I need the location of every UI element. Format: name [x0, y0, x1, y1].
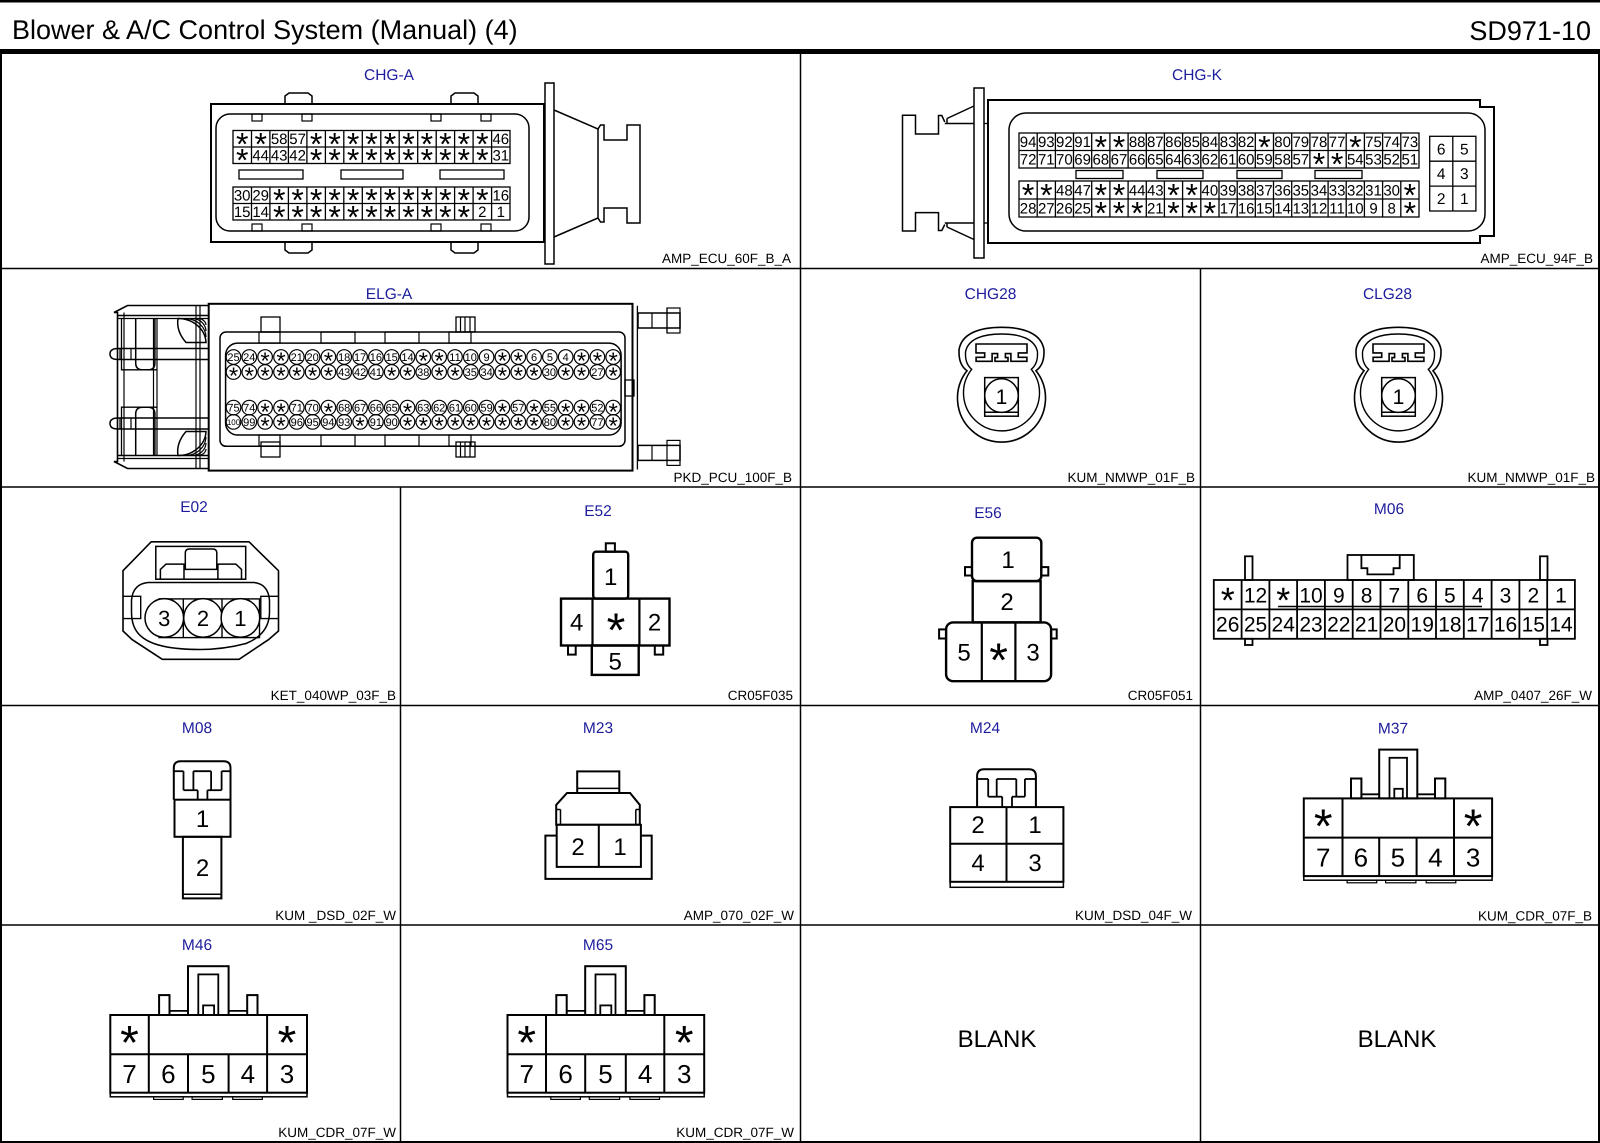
svg-text:57: 57: [289, 131, 306, 148]
svg-text:M06: M06: [1374, 501, 1404, 518]
svg-text:7: 7: [1316, 842, 1330, 872]
svg-text:*: *: [1113, 195, 1125, 231]
svg-text:41: 41: [370, 367, 382, 379]
svg-text:30: 30: [234, 188, 251, 205]
svg-text:4: 4: [563, 352, 569, 364]
svg-text:59: 59: [1256, 152, 1273, 169]
svg-text:E56: E56: [974, 505, 1002, 522]
svg-text:16: 16: [1238, 200, 1255, 217]
svg-text:5: 5: [201, 1059, 215, 1089]
svg-text:*: *: [561, 363, 570, 390]
svg-text:2: 2: [971, 812, 984, 839]
svg-text:*: *: [458, 142, 470, 178]
svg-text:33: 33: [1329, 182, 1346, 199]
svg-text:1: 1: [196, 806, 209, 833]
svg-text:88: 88: [1129, 134, 1146, 151]
svg-text:*: *: [291, 199, 303, 235]
svg-text:*: *: [328, 142, 340, 178]
svg-text:11: 11: [1329, 200, 1345, 217]
svg-text:*: *: [403, 413, 412, 440]
svg-text:2: 2: [1437, 191, 1446, 208]
svg-text:10: 10: [465, 352, 477, 364]
svg-text:*: *: [514, 363, 523, 390]
svg-text:*: *: [529, 363, 538, 390]
svg-text:4: 4: [1472, 584, 1484, 607]
svg-text:82: 82: [1238, 134, 1255, 151]
svg-text:24: 24: [243, 352, 255, 364]
svg-text:*: *: [561, 413, 570, 440]
svg-text:75: 75: [227, 403, 239, 415]
svg-text:23: 23: [1299, 614, 1322, 637]
svg-text:42: 42: [354, 367, 366, 379]
svg-text:99: 99: [243, 417, 255, 429]
svg-text:*: *: [1404, 195, 1416, 231]
svg-text:3: 3: [1466, 842, 1480, 872]
svg-text:28: 28: [1020, 200, 1037, 217]
svg-text:1: 1: [1393, 386, 1405, 409]
svg-text:20: 20: [306, 352, 318, 364]
svg-text:96: 96: [291, 417, 303, 429]
svg-text:7: 7: [122, 1059, 136, 1089]
svg-text:57: 57: [1292, 152, 1309, 169]
svg-text:60: 60: [1238, 152, 1255, 169]
svg-text:38: 38: [1238, 182, 1255, 199]
svg-text:6: 6: [1437, 141, 1446, 158]
svg-text:5: 5: [1460, 141, 1469, 158]
svg-text:BLANK: BLANK: [1358, 1026, 1437, 1053]
svg-text:46: 46: [492, 131, 509, 148]
svg-text:M46: M46: [182, 937, 212, 954]
svg-text:65: 65: [386, 403, 398, 415]
svg-text:15: 15: [1256, 200, 1273, 217]
svg-text:*: *: [402, 142, 414, 178]
svg-text:PKD_PCU_100F_B: PKD_PCU_100F_B: [673, 470, 792, 485]
svg-text:10: 10: [1299, 584, 1322, 607]
svg-text:*: *: [308, 363, 317, 390]
svg-text:13: 13: [1292, 200, 1309, 217]
svg-text:35: 35: [465, 367, 477, 379]
svg-text:87: 87: [1147, 134, 1164, 151]
svg-text:32: 32: [1347, 182, 1364, 199]
svg-text:*: *: [1095, 195, 1107, 231]
svg-text:93: 93: [338, 417, 350, 429]
svg-text:M08: M08: [182, 720, 212, 737]
svg-text:*: *: [476, 142, 488, 178]
svg-text:34: 34: [1311, 182, 1328, 199]
svg-text:4: 4: [971, 850, 984, 877]
svg-text:6: 6: [531, 352, 537, 364]
svg-text:5: 5: [1391, 842, 1405, 872]
svg-text:16: 16: [1494, 614, 1517, 637]
svg-text:*: *: [450, 413, 459, 440]
svg-text:2: 2: [196, 855, 209, 882]
svg-text:*: *: [1167, 195, 1179, 231]
svg-text:20: 20: [1383, 614, 1406, 637]
svg-text:1: 1: [613, 834, 626, 861]
svg-text:38: 38: [417, 367, 429, 379]
svg-text:3: 3: [280, 1059, 294, 1089]
svg-text:*: *: [439, 199, 451, 235]
svg-text:*: *: [439, 142, 451, 178]
svg-text:*: *: [310, 142, 322, 178]
svg-text:*: *: [328, 199, 340, 235]
svg-text:37: 37: [1256, 182, 1273, 199]
svg-text:2: 2: [197, 606, 209, 631]
svg-text:80: 80: [544, 417, 556, 429]
svg-text:68: 68: [338, 403, 350, 415]
svg-text:14: 14: [252, 204, 269, 221]
svg-text:52: 52: [1383, 152, 1400, 169]
svg-text:2: 2: [1000, 589, 1013, 616]
svg-text:29: 29: [252, 188, 269, 205]
svg-text:*: *: [1131, 195, 1143, 231]
svg-text:72: 72: [1020, 152, 1037, 169]
svg-text:CHG-A: CHG-A: [364, 67, 415, 84]
svg-text:*: *: [276, 363, 285, 390]
svg-text:6: 6: [558, 1059, 572, 1089]
svg-text:2: 2: [1527, 584, 1539, 607]
svg-text:4: 4: [1428, 842, 1442, 872]
svg-text:17: 17: [354, 352, 366, 364]
svg-text:26: 26: [1056, 200, 1073, 217]
svg-text:43: 43: [1147, 182, 1164, 199]
svg-text:*: *: [482, 413, 491, 440]
svg-text:51: 51: [1402, 152, 1419, 169]
svg-text:*: *: [365, 199, 377, 235]
svg-text:48: 48: [1056, 182, 1073, 199]
svg-text:100: 100: [227, 418, 241, 427]
svg-text:31: 31: [1365, 182, 1382, 199]
svg-text:25: 25: [227, 352, 239, 364]
svg-text:6: 6: [1354, 842, 1368, 872]
svg-text:5: 5: [957, 640, 970, 667]
svg-text:53: 53: [1365, 152, 1382, 169]
svg-text:70: 70: [306, 403, 318, 415]
svg-text:94: 94: [322, 417, 334, 429]
svg-text:17: 17: [1466, 614, 1489, 637]
svg-text:*: *: [273, 199, 285, 235]
svg-text:77: 77: [591, 417, 603, 429]
svg-text:Blower & A/C Control System (M: Blower & A/C Control System (Manual) (4): [12, 15, 518, 45]
svg-text:68: 68: [1092, 152, 1109, 169]
svg-text:90: 90: [386, 417, 398, 429]
svg-text:*: *: [435, 363, 444, 390]
svg-text:*: *: [577, 363, 586, 390]
svg-text:64: 64: [1165, 152, 1182, 169]
svg-text:12: 12: [1244, 584, 1267, 607]
svg-text:5: 5: [547, 352, 553, 364]
svg-text:18: 18: [1438, 614, 1461, 637]
svg-text:63: 63: [1183, 152, 1200, 169]
svg-text:27: 27: [591, 367, 603, 379]
svg-text:*: *: [577, 413, 586, 440]
svg-text:55: 55: [544, 403, 556, 415]
svg-text:85: 85: [1183, 134, 1200, 151]
svg-text:71: 71: [1038, 152, 1055, 169]
svg-text:21: 21: [1147, 200, 1164, 217]
svg-text:*: *: [435, 413, 444, 440]
svg-text:6: 6: [161, 1059, 175, 1089]
svg-text:*: *: [450, 363, 459, 390]
svg-text:*: *: [421, 199, 433, 235]
svg-text:E52: E52: [584, 503, 612, 520]
svg-text:*: *: [355, 413, 364, 440]
svg-text:3: 3: [1028, 850, 1041, 877]
svg-text:91: 91: [1074, 134, 1091, 151]
svg-text:*: *: [609, 413, 618, 440]
svg-text:69: 69: [1074, 152, 1091, 169]
svg-text:93: 93: [1038, 134, 1055, 151]
svg-text:5: 5: [598, 1059, 612, 1089]
svg-text:84: 84: [1202, 134, 1219, 151]
svg-text:35: 35: [1292, 182, 1309, 199]
svg-text:25: 25: [1074, 200, 1091, 217]
svg-text:1: 1: [1001, 547, 1014, 574]
svg-text:3: 3: [677, 1059, 691, 1089]
svg-text:*: *: [402, 199, 414, 235]
svg-text:4: 4: [241, 1059, 255, 1089]
svg-text:8: 8: [1388, 200, 1396, 217]
svg-text:*: *: [609, 363, 618, 390]
svg-text:E02: E02: [180, 499, 208, 516]
svg-text:*: *: [260, 413, 269, 440]
svg-text:74: 74: [1383, 134, 1400, 151]
svg-text:27: 27: [1038, 200, 1055, 217]
svg-text:86: 86: [1165, 134, 1182, 151]
svg-text:*: *: [236, 142, 248, 178]
svg-text:*: *: [229, 363, 238, 390]
svg-text:2: 2: [478, 204, 486, 221]
svg-text:CLG28: CLG28: [1363, 286, 1412, 303]
svg-text:3: 3: [1500, 584, 1512, 607]
svg-text:74: 74: [243, 403, 255, 415]
svg-text:KUM_NMWP_01F_B: KUM_NMWP_01F_B: [1067, 470, 1195, 485]
svg-text:2: 2: [648, 610, 661, 637]
svg-text:52: 52: [591, 403, 603, 415]
svg-text:14: 14: [1549, 614, 1573, 637]
svg-text:*: *: [245, 363, 254, 390]
svg-text:30: 30: [1383, 182, 1400, 199]
svg-text:67: 67: [1111, 152, 1128, 169]
svg-text:5: 5: [1444, 584, 1456, 607]
svg-text:1: 1: [1460, 191, 1469, 208]
svg-text:AMP_0407_26F_W: AMP_0407_26F_W: [1474, 688, 1592, 703]
svg-text:1: 1: [497, 204, 505, 221]
svg-text:62: 62: [1202, 152, 1219, 169]
svg-text:BLANK: BLANK: [958, 1026, 1037, 1053]
svg-text:*: *: [324, 363, 333, 390]
svg-text:58: 58: [271, 131, 288, 148]
svg-text:79: 79: [1292, 134, 1309, 151]
svg-text:3: 3: [1026, 640, 1039, 667]
svg-text:21: 21: [291, 352, 303, 364]
svg-text:*: *: [421, 142, 433, 178]
svg-text:36: 36: [1274, 182, 1291, 199]
svg-text:KUM_CDR_07F_B: KUM_CDR_07F_B: [1478, 908, 1592, 923]
svg-text:*: *: [276, 413, 285, 440]
svg-text:*: *: [347, 142, 359, 178]
svg-text:16: 16: [370, 352, 382, 364]
svg-text:58: 58: [1274, 152, 1291, 169]
svg-text:M23: M23: [583, 720, 613, 737]
svg-text:4: 4: [638, 1059, 652, 1089]
svg-text:CHG-K: CHG-K: [1172, 67, 1223, 84]
svg-text:9: 9: [484, 352, 490, 364]
svg-text:43: 43: [271, 148, 288, 165]
svg-text:9: 9: [1333, 584, 1345, 607]
svg-text:*: *: [419, 413, 428, 440]
svg-text:1: 1: [1028, 812, 1041, 839]
svg-text:4: 4: [570, 610, 583, 637]
svg-text:17: 17: [1220, 200, 1237, 217]
svg-text:80: 80: [1274, 134, 1291, 151]
svg-text:66: 66: [370, 403, 382, 415]
svg-text:*: *: [403, 363, 412, 390]
svg-text:*: *: [989, 634, 1008, 687]
svg-text:47: 47: [1074, 182, 1091, 199]
svg-text:*: *: [365, 142, 377, 178]
svg-text:*: *: [384, 142, 396, 178]
svg-text:*: *: [458, 199, 470, 235]
svg-text:*: *: [292, 363, 301, 390]
svg-text:92: 92: [1056, 134, 1073, 151]
svg-text:AMP_ECU_94F_B: AMP_ECU_94F_B: [1480, 251, 1593, 266]
svg-text:1: 1: [234, 606, 246, 631]
svg-text:3: 3: [158, 606, 170, 631]
svg-text:91: 91: [370, 417, 382, 429]
svg-text:KUM_DSD_04F_W: KUM_DSD_04F_W: [1075, 908, 1192, 923]
svg-text:8: 8: [1361, 584, 1373, 607]
svg-text:66: 66: [1129, 152, 1146, 169]
svg-text:15: 15: [1522, 614, 1545, 637]
svg-text:CHG28: CHG28: [965, 286, 1017, 303]
svg-text:*: *: [260, 363, 269, 390]
svg-text:65: 65: [1147, 152, 1164, 169]
svg-text:54: 54: [1347, 152, 1364, 169]
svg-text:7: 7: [519, 1059, 533, 1089]
svg-text:*: *: [347, 199, 359, 235]
svg-text:*: *: [1331, 146, 1343, 182]
svg-text:M37: M37: [1378, 720, 1408, 737]
svg-text:*: *: [387, 363, 396, 390]
svg-text:1: 1: [1555, 584, 1567, 607]
svg-text:94: 94: [1020, 134, 1037, 151]
svg-text:3: 3: [1460, 166, 1469, 183]
svg-text:KUM_CDR_07F_W: KUM_CDR_07F_W: [676, 1125, 794, 1140]
svg-text:39: 39: [1220, 182, 1237, 199]
svg-text:CR05F035: CR05F035: [728, 688, 793, 703]
svg-text:*: *: [498, 413, 507, 440]
svg-text:AMP_ECU_60F_B_A: AMP_ECU_60F_B_A: [662, 251, 791, 266]
svg-text:*: *: [384, 199, 396, 235]
svg-text:*: *: [310, 199, 322, 235]
svg-text:7: 7: [1389, 584, 1401, 607]
svg-text:KUM_CDR_07F_W: KUM_CDR_07F_W: [278, 1125, 396, 1140]
svg-text:16: 16: [492, 188, 509, 205]
svg-text:15: 15: [234, 204, 251, 221]
svg-text:70: 70: [1056, 152, 1073, 169]
svg-text:71: 71: [291, 403, 303, 415]
svg-text:CR05F051: CR05F051: [1128, 688, 1193, 703]
svg-text:25: 25: [1244, 614, 1267, 637]
svg-text:18: 18: [338, 352, 350, 364]
svg-text:73: 73: [1402, 134, 1419, 151]
svg-text:75: 75: [1365, 134, 1382, 151]
svg-text:12: 12: [1311, 200, 1328, 217]
svg-text:21: 21: [1355, 614, 1378, 637]
svg-text:22: 22: [1327, 614, 1350, 637]
svg-text:95: 95: [306, 417, 318, 429]
svg-text:11: 11: [449, 352, 460, 364]
svg-text:44: 44: [252, 148, 269, 165]
svg-text:*: *: [1185, 195, 1197, 231]
svg-text:15: 15: [386, 352, 398, 364]
svg-text:14: 14: [401, 352, 413, 364]
svg-text:6: 6: [1416, 584, 1428, 607]
svg-text:1: 1: [996, 386, 1008, 409]
svg-text:SD971-10: SD971-10: [1469, 16, 1591, 46]
svg-text:31: 31: [492, 148, 509, 165]
svg-text:26: 26: [1216, 614, 1239, 637]
svg-text:*: *: [514, 413, 523, 440]
svg-text:KUM_NMWP_01F_B: KUM_NMWP_01F_B: [1467, 470, 1595, 485]
svg-text:61: 61: [1220, 152, 1237, 169]
svg-text:*: *: [498, 363, 507, 390]
svg-text:9: 9: [1369, 200, 1377, 217]
svg-text:2: 2: [571, 834, 584, 861]
svg-text:KUM _DSD_02F_W: KUM _DSD_02F_W: [275, 908, 396, 923]
svg-text:43: 43: [338, 367, 350, 379]
svg-text:42: 42: [289, 148, 306, 165]
svg-text:10: 10: [1347, 200, 1364, 217]
svg-text:5: 5: [609, 649, 622, 676]
svg-text:83: 83: [1220, 134, 1237, 151]
svg-text:14: 14: [1274, 200, 1291, 217]
svg-text:34: 34: [480, 367, 492, 379]
svg-text:AMP_070_02F_W: AMP_070_02F_W: [684, 908, 795, 923]
svg-text:M24: M24: [970, 720, 1001, 737]
svg-text:*: *: [466, 413, 475, 440]
svg-text:KET_040WP_03F_B: KET_040WP_03F_B: [271, 688, 396, 703]
svg-text:30: 30: [544, 367, 556, 379]
svg-text:4: 4: [1437, 166, 1446, 183]
svg-text:19: 19: [1411, 614, 1434, 637]
svg-text:M65: M65: [583, 937, 613, 954]
svg-text:*: *: [529, 413, 538, 440]
svg-text:1: 1: [604, 564, 617, 591]
svg-text:ELG-A: ELG-A: [366, 286, 413, 303]
svg-text:*: *: [1204, 195, 1216, 231]
svg-text:24: 24: [1272, 614, 1296, 637]
